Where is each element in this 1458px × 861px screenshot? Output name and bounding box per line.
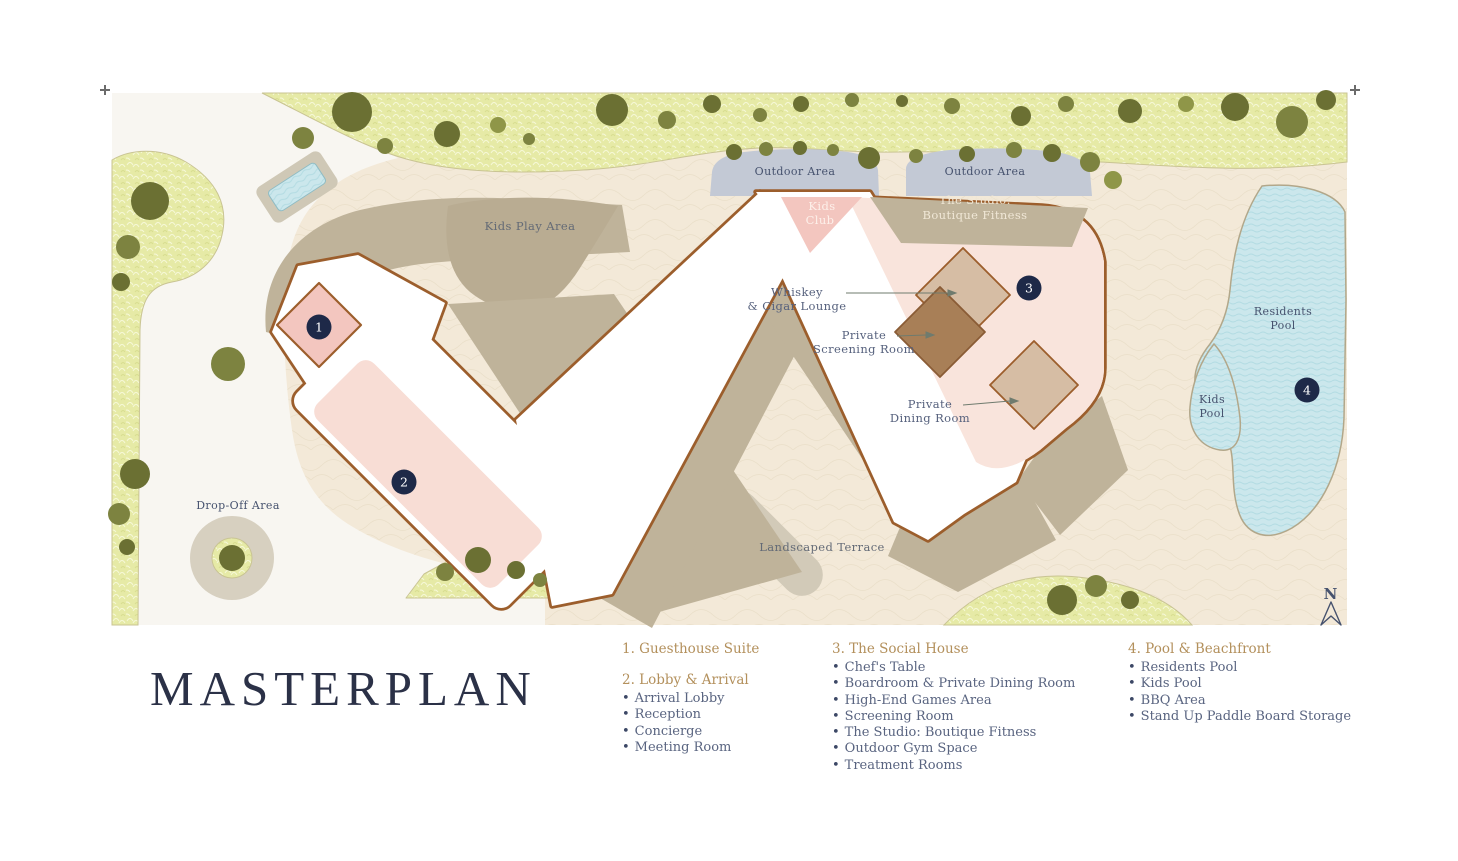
label-kids-club: Kids xyxy=(808,199,835,213)
label-kids-play-area: Kids Play Area xyxy=(485,219,576,233)
marker-3: 3 xyxy=(1017,276,1042,301)
svg-text:1: 1 xyxy=(315,320,323,335)
label-dining: Private xyxy=(908,397,953,411)
svg-text:3: 3 xyxy=(1025,281,1033,296)
legend-item: Concierge xyxy=(622,724,759,740)
legend-item: Kids Pool xyxy=(1128,676,1351,692)
legend-item: Chef's Table xyxy=(832,660,1075,676)
label-studio: The Studio: xyxy=(939,193,1011,207)
label-outdoor-area-left: Outdoor Area xyxy=(755,165,836,178)
label-drop-off: Drop-Off Area xyxy=(196,499,280,512)
legend-heading-guesthouse: 1. Guesthouse Suite xyxy=(622,641,759,657)
label-terrace: Landscaped Terrace xyxy=(759,540,885,554)
legend-heading-social-house: 3. The Social House xyxy=(832,641,1075,657)
legend-heading-lobby: 2. Lobby & Arrival xyxy=(622,672,759,688)
legend-column-1: 1. Guesthouse Suite 2. Lobby & Arrival A… xyxy=(622,641,759,756)
legend-column-2: 3. The Social House Chef's Table Boardro… xyxy=(832,641,1075,774)
legend-item: BBQ Area xyxy=(1128,693,1351,709)
legend-item: Boardroom & Private Dining Room xyxy=(832,676,1075,692)
legend-heading-pool-beachfront: 4. Pool & Beachfront xyxy=(1128,641,1351,657)
svg-text:N: N xyxy=(1324,585,1339,603)
legend-item: The Studio: Boutique Fitness xyxy=(832,725,1075,741)
svg-text:Club: Club xyxy=(806,213,835,227)
label-whiskey: Whiskey xyxy=(771,285,823,299)
svg-text:4: 4 xyxy=(1303,383,1311,398)
svg-text:2: 2 xyxy=(400,475,408,490)
marker-4: 4 xyxy=(1295,378,1320,403)
marker-2: 2 xyxy=(392,470,417,495)
legend-item: Outdoor Gym Space xyxy=(832,741,1075,757)
svg-text:Dining Room: Dining Room xyxy=(890,411,970,425)
svg-text:Pool: Pool xyxy=(1199,407,1224,420)
svg-text:Screening Room: Screening Room xyxy=(813,342,915,356)
legend-item: Stand Up Paddle Board Storage xyxy=(1128,709,1351,725)
svg-text:Boutique Fitness: Boutique Fitness xyxy=(922,208,1027,222)
legend-item: Reception xyxy=(622,707,759,723)
legend-item: Screening Room xyxy=(832,709,1075,725)
page-title: MASTERPLAN xyxy=(150,660,537,717)
legend-item: Arrival Lobby xyxy=(622,691,759,707)
label-outdoor-area-right: Outdoor Area xyxy=(945,165,1026,178)
legend-item: High-End Games Area xyxy=(832,693,1075,709)
legend-column-3: 4. Pool & Beachfront Residents Pool Kids… xyxy=(1128,641,1351,725)
legend-item: Treatment Rooms xyxy=(832,758,1075,774)
legend-item: Residents Pool xyxy=(1128,660,1351,676)
marker-1: 1 xyxy=(307,315,332,340)
svg-text:& Cigar Lounge: & Cigar Lounge xyxy=(748,299,847,313)
label-screening: Private xyxy=(842,328,887,342)
label-residents-pool: Residents xyxy=(1254,305,1312,318)
svg-text:Pool: Pool xyxy=(1270,319,1295,332)
label-kids-pool: Kids xyxy=(1199,393,1225,406)
legend-item: Meeting Room xyxy=(622,740,759,756)
